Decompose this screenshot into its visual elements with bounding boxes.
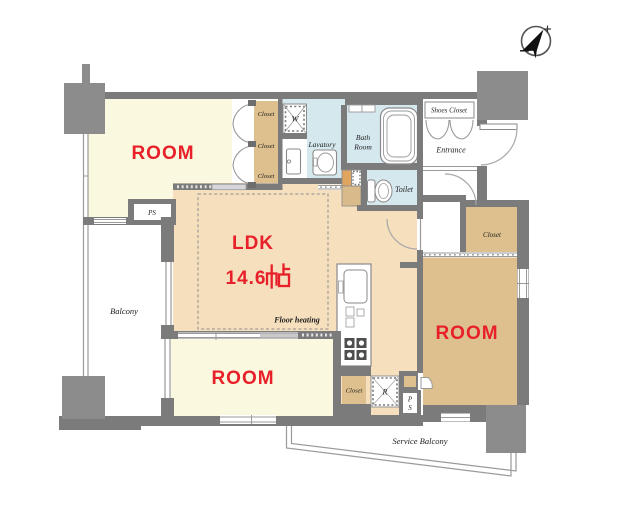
svg-text:Bath: Bath (356, 133, 370, 142)
svg-text:Shoes Closet: Shoes Closet (431, 107, 468, 115)
svg-text:PS: PS (147, 209, 156, 217)
svg-text:R: R (382, 388, 388, 397)
svg-text:S: S (408, 404, 412, 412)
svg-text:Lavatory: Lavatory (307, 140, 336, 149)
svg-text:Balcony: Balcony (110, 306, 138, 316)
svg-text:Entrance: Entrance (435, 146, 466, 155)
svg-text:Room: Room (353, 143, 372, 152)
svg-text:W: W (291, 114, 299, 124)
svg-text:ROOM: ROOM (435, 323, 498, 344)
svg-text:Closet: Closet (346, 388, 363, 395)
svg-text:LDK: LDK (232, 233, 274, 254)
svg-text:Closet: Closet (483, 231, 502, 239)
svg-text:Closet: Closet (258, 173, 275, 180)
svg-text:Closet: Closet (258, 111, 275, 118)
svg-text:P: P (407, 396, 413, 404)
svg-text:ROOM: ROOM (211, 368, 274, 389)
svg-text:Closet: Closet (258, 143, 275, 150)
svg-text:Toilet: Toilet (395, 185, 414, 194)
svg-text:Service Balcony: Service Balcony (393, 436, 448, 446)
svg-text:Floor heating: Floor heating (273, 316, 320, 325)
svg-text:14.6: 14.6 (226, 268, 267, 289)
svg-text:ROOM: ROOM (131, 143, 194, 164)
